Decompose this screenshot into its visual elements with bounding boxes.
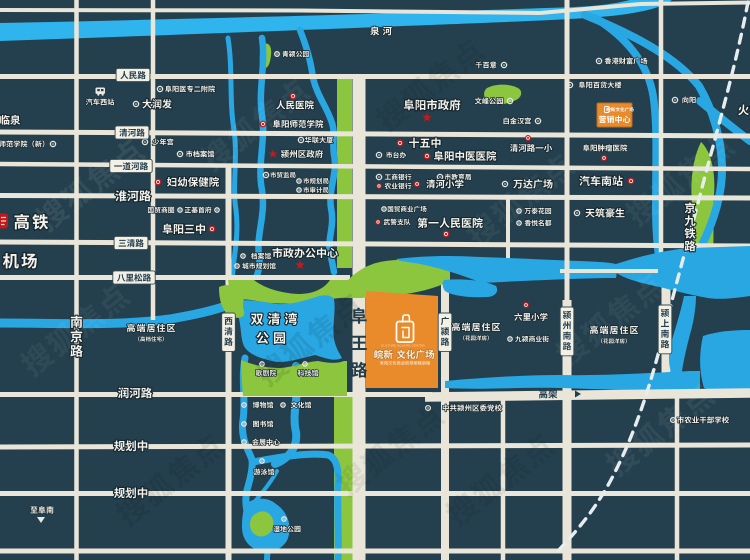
svg-text:CULTURE SQUARE CENTER: CULTURE SQUARE CENTER: [381, 344, 425, 348]
